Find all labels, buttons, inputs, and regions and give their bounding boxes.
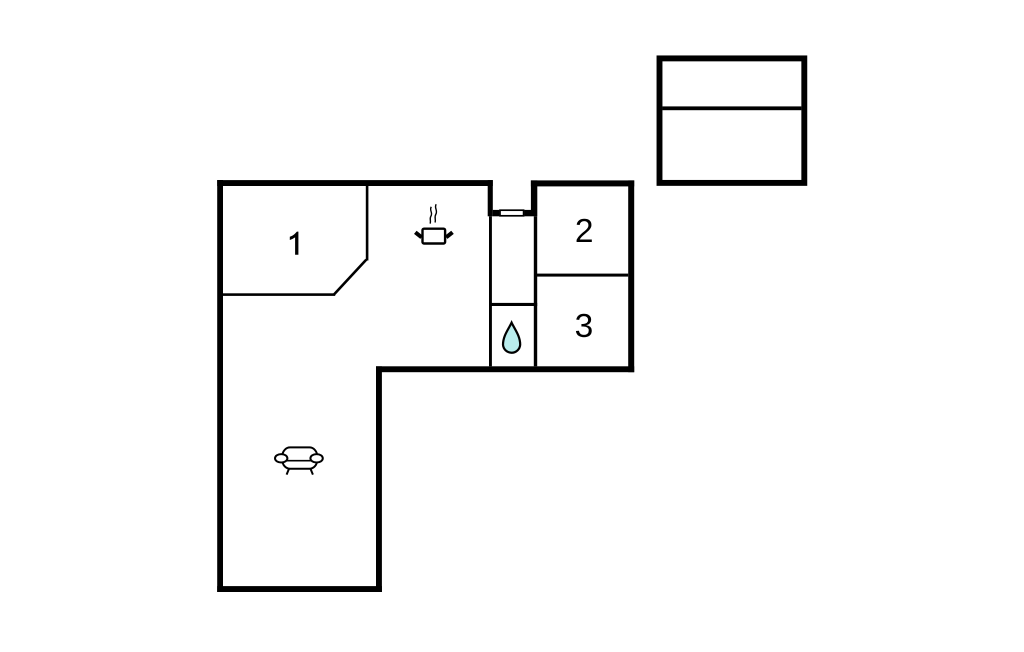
svg-text:3: 3	[575, 308, 594, 345]
svg-text:2: 2	[575, 213, 594, 250]
